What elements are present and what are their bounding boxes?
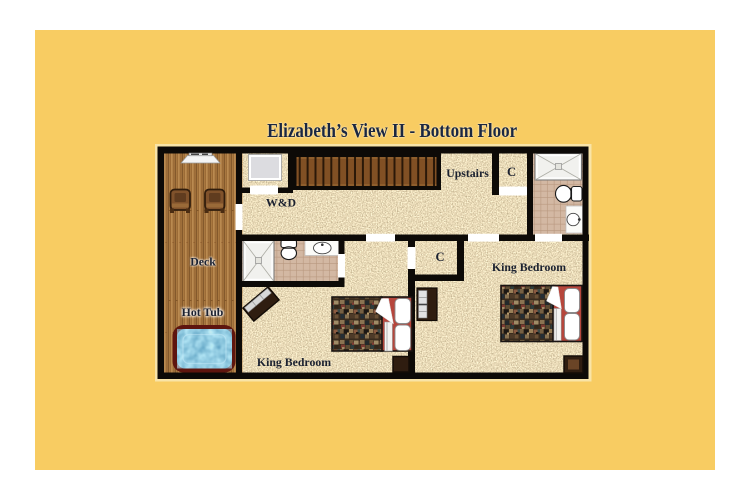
svg-text:King Bedroom: King Bedroom [492, 260, 566, 274]
svg-text:W&D: W&D [266, 196, 296, 210]
svg-text:King Bedroom: King Bedroom [257, 355, 331, 369]
svg-text:Hot Tub: Hot Tub [182, 305, 224, 319]
svg-text:Upstairs: Upstairs [446, 166, 489, 180]
svg-text:Deck: Deck [190, 255, 216, 269]
svg-text:C: C [435, 250, 444, 264]
svg-text:C: C [507, 165, 516, 179]
